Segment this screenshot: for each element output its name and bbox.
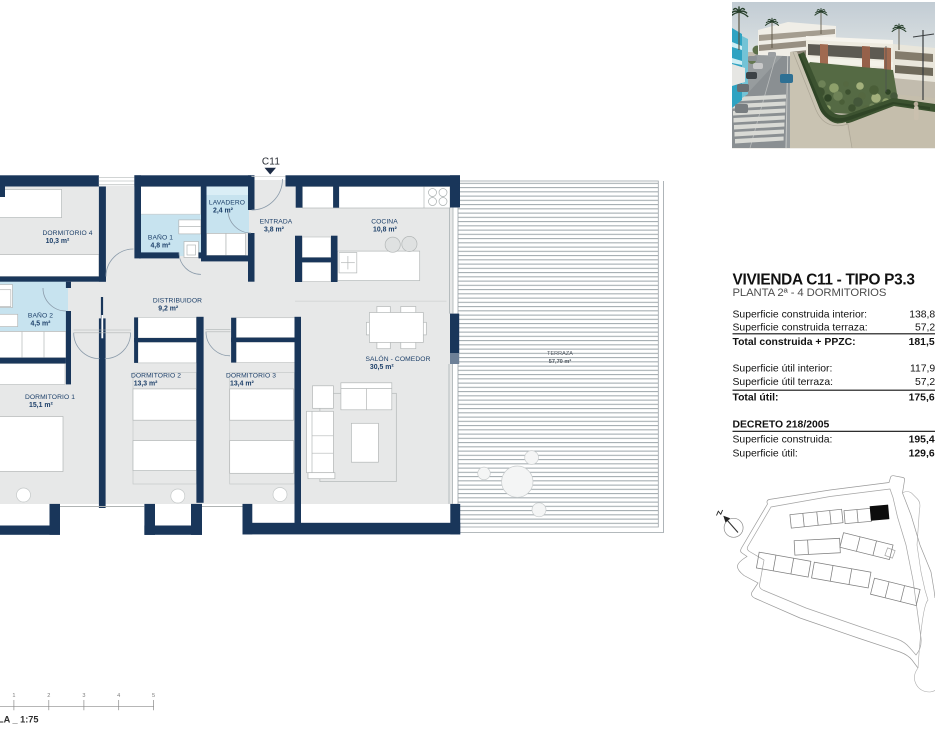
svg-text:4,8 m²: 4,8 m² — [151, 243, 172, 250]
svg-text:4: 4 — [117, 693, 120, 699]
svg-text:Superficie construida interior: Superficie construida interior: — [733, 309, 868, 320]
svg-text:15,1 m²: 15,1 m² — [29, 402, 53, 409]
svg-text:5: 5 — [152, 693, 155, 699]
svg-text:LAVADERO: LAVADERO — [209, 200, 245, 207]
svg-text:Superficie construida:: Superficie construida: — [733, 435, 833, 446]
svg-text:Superficie útil interior:: Superficie útil interior: — [733, 364, 833, 375]
svg-text:13,3 m²: 13,3 m² — [134, 381, 158, 388]
svg-text:10,3 m²: 10,3 m² — [46, 238, 70, 245]
svg-text:C11: C11 — [262, 157, 280, 168]
svg-text:DORMITORIO 4: DORMITORIO 4 — [42, 230, 92, 237]
svg-text:117,95 m²: 117,95 m² — [910, 364, 935, 375]
svg-text:181,55 m²: 181,55 m² — [909, 337, 935, 348]
svg-text:DECRETO 218/2005: DECRETO 218/2005 — [733, 420, 830, 431]
svg-text:10,8 m²: 10,8 m² — [373, 227, 397, 234]
svg-text:175,65 m²: 175,65 m² — [909, 393, 935, 404]
svg-text:195,45 m²: 195,45 m² — [909, 435, 935, 446]
svg-text:Superficie útil:: Superficie útil: — [733, 449, 798, 460]
svg-text:TERRAZA: TERRAZA — [547, 351, 573, 357]
svg-text:DORMITORIO 2: DORMITORIO 2 — [131, 373, 181, 380]
svg-text:DORMITORIO 1: DORMITORIO 1 — [25, 394, 75, 401]
svg-text:Superficie útil terraza:: Superficie útil terraza: — [733, 377, 834, 388]
svg-text:57,20 m²: 57,20 m² — [915, 322, 935, 333]
svg-text:3,8 m²: 3,8 m² — [264, 227, 285, 234]
svg-text:9,2 m²: 9,2 m² — [158, 306, 179, 313]
svg-text:57,70 m²: 57,70 m² — [549, 358, 572, 365]
svg-text:2,4 m²: 2,4 m² — [213, 208, 234, 215]
svg-text:SALÓN - COMEDOR: SALÓN - COMEDOR — [365, 354, 430, 363]
svg-text:LA _ 1:75: LA _ 1:75 — [0, 715, 39, 725]
svg-text:PLANTA 2ª - 4 DORMITORIOS: PLANTA 2ª - 4 DORMITORIOS — [733, 287, 887, 299]
svg-text:30,5 m²: 30,5 m² — [370, 364, 394, 371]
svg-text:DISTRIBUIDOR: DISTRIBUIDOR — [153, 298, 202, 305]
svg-text:13,4 m²: 13,4 m² — [230, 381, 254, 388]
svg-text:129,65 m²: 129,65 m² — [909, 449, 935, 460]
svg-text:Total construida + PPZC:: Total construida + PPZC: — [733, 337, 856, 348]
svg-text:VIVIENDA C11 - TIPO P3.3: VIVIENDA C11 - TIPO P3.3 — [733, 272, 915, 289]
svg-text:COCINA: COCINA — [371, 219, 398, 226]
svg-text:Superficie construida terraza:: Superficie construida terraza: — [733, 322, 868, 333]
svg-text:Total útil:: Total útil: — [733, 393, 779, 404]
svg-text:3: 3 — [82, 693, 85, 699]
svg-text:DORMITORIO 3: DORMITORIO 3 — [226, 373, 276, 380]
svg-text:57,20 m²: 57,20 m² — [915, 377, 935, 388]
svg-text:1: 1 — [12, 693, 15, 699]
svg-text:138,85 m²: 138,85 m² — [909, 309, 935, 320]
svg-text:ENTRADA: ENTRADA — [260, 219, 293, 226]
svg-text:BAÑO 2: BAÑO 2 — [28, 311, 53, 320]
svg-text:4,5 m²: 4,5 m² — [31, 321, 52, 328]
svg-text:2: 2 — [47, 693, 50, 699]
svg-text:BAÑO 1: BAÑO 1 — [148, 233, 173, 242]
